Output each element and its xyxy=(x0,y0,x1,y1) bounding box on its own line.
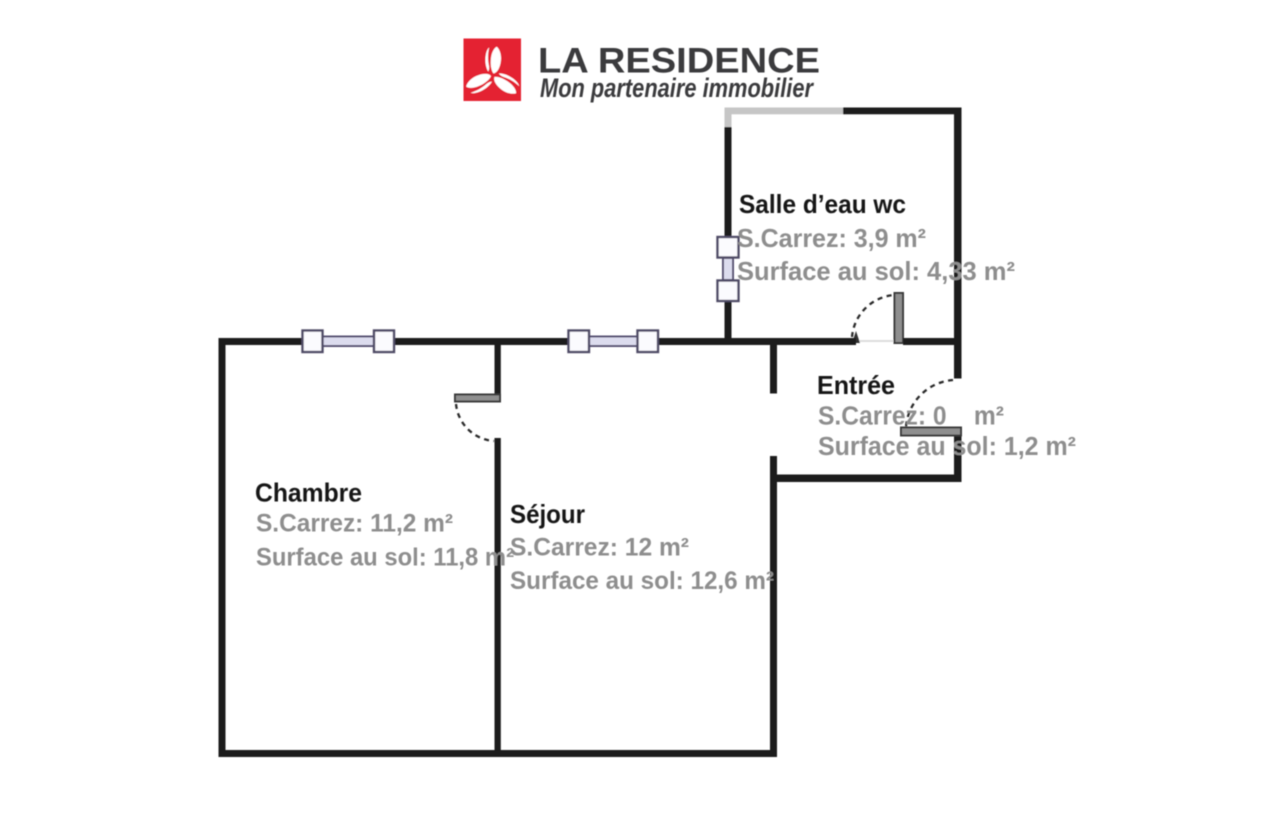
svg-text:Surface au sol: 4,33 m²: Surface au sol: 4,33 m² xyxy=(737,256,1015,286)
svg-text:S.Carrez: 3,9 m²: S.Carrez: 3,9 m² xyxy=(737,223,926,253)
svg-text:Entrée: Entrée xyxy=(817,370,895,400)
svg-text:Surface au sol: 11,8 m²: Surface au sol: 11,8 m² xyxy=(256,544,514,572)
svg-text:Chambre: Chambre xyxy=(255,478,362,508)
svg-text:Séjour: Séjour xyxy=(510,499,585,529)
svg-text:Surface au sol: 1,2 m²: Surface au sol: 1,2 m² xyxy=(818,433,1076,461)
svg-text:S.Carrez: 0 m²: S.Carrez: 0 m² xyxy=(818,403,1004,431)
svg-text:Salle d’eau wc: Salle d’eau wc xyxy=(739,189,906,219)
svg-text:S.Carrez: 11,2 m²: S.Carrez: 11,2 m² xyxy=(256,510,453,538)
svg-text:Mon partenaire immobilier: Mon partenaire immobilier xyxy=(540,73,814,103)
svg-text:S.Carrez: 12 m²: S.Carrez: 12 m² xyxy=(510,534,689,562)
svg-text:Surface au sol: 12,6 m²: Surface au sol: 12,6 m² xyxy=(510,567,774,595)
